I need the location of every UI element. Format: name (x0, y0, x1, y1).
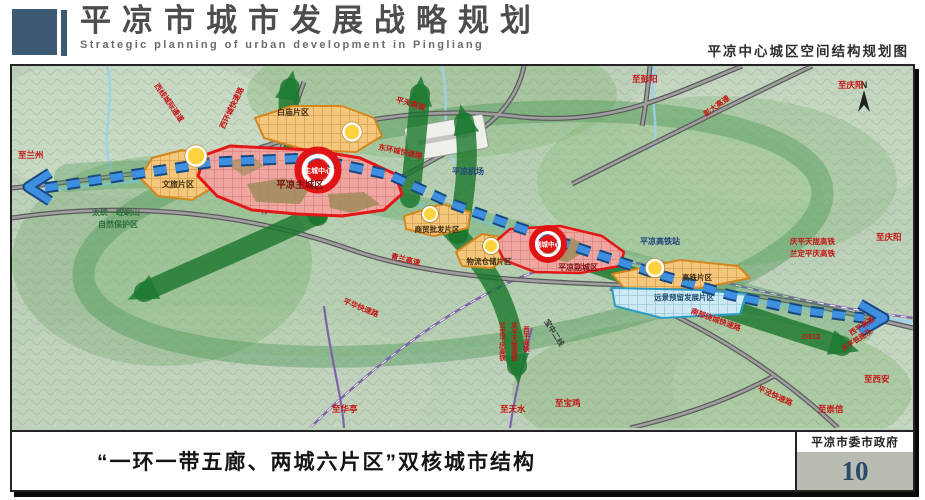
node (422, 206, 439, 223)
map-canvas: 主城中心 副城中心 N 至兰州 至彭阳 至庆阳 至庆阳 至西安 至崇信 至华亭 (12, 66, 913, 428)
planning-map: 主城中心 副城中心 N 至兰州 至彭阳 至庆阳 至庆阳 至西安 至崇信 至华亭 (12, 66, 913, 432)
brand-logo-bar (61, 10, 67, 56)
label-district-yuanjing: 远景预留发展片区 (654, 292, 714, 302)
label-district-baimiao: 白庙片区 (277, 107, 309, 117)
label-city-sub: 平凉副城区 (558, 262, 598, 272)
label-nature-reserve-line1: 太统—崆峒山 (91, 207, 140, 217)
label-district-shangmao: 商贸批发片区 (415, 224, 460, 234)
sub-core-label: 副城中心 (535, 240, 562, 249)
label-ldpq-hsr: 兰定平庆高铁 (790, 248, 835, 258)
node (185, 145, 207, 167)
main-core-label: 主城中心 (304, 166, 332, 175)
label-district-wenlv: 文旅片区 (162, 179, 194, 189)
node (342, 122, 362, 142)
label-to-xian: 至西安 (864, 374, 890, 384)
node (646, 259, 665, 278)
node (483, 238, 500, 255)
label-g312: G312 (802, 332, 820, 341)
label-to-baoji: 至宝鸡 (555, 398, 581, 408)
structure-caption: “一环一带五廊、两城六片区”双核城市结构 (12, 432, 795, 490)
label-to-pengyang: 至彭阳 (632, 74, 658, 84)
map-sheet-title: 平凉中心城区空间结构规划图 (708, 40, 910, 60)
page-subtitle: Strategic planning of urban development … (80, 39, 542, 51)
label-district-wuliu: 物流仓储片区 (467, 256, 512, 266)
label-hsr-station: 平凉高铁站 (640, 236, 680, 246)
brand-logo-square (12, 9, 57, 55)
label-to-huating: 至华亭 (332, 404, 358, 414)
label-nature-reserve-line2: 自然保护区 (98, 219, 138, 229)
label-airport: 平凉机场 (452, 166, 484, 176)
label-qptl-hsr: 庆平天陇高铁 (789, 236, 835, 246)
page-header: 平凉市城市发展战略规划 Strategic planning of urban … (0, 0, 925, 64)
label-district-gaotie: 高铁片区 (682, 272, 712, 282)
footer: “一环一带五廊、两城六片区”双核城市结构 平凉市委市政府 10 (12, 432, 913, 490)
page-title: 平凉市城市发展战略规划 (80, 4, 542, 38)
label-city-main: 平凉主城区 (276, 179, 324, 191)
label-to-tianshui: 至天水 (500, 404, 526, 414)
agency-label: 平凉市委市政府 (797, 432, 913, 452)
sub-city-core: 副城中心 (532, 228, 564, 260)
page-number: 10 (797, 452, 913, 490)
label-to-chongxin: 至崇信 (818, 404, 844, 414)
label-to-qingyang-right: 至庆阳 (876, 232, 902, 242)
label-to-qingyang-top: 至庆阳 (838, 80, 864, 90)
label-to-lanzhou: 至兰州 (18, 150, 44, 160)
footer-page-box: 平凉市委市政府 10 (795, 432, 913, 490)
content-plate: 主城中心 副城中心 N 至兰州 至彭阳 至庆阳 至庆阳 至西安 至崇信 至华亭 (10, 64, 915, 492)
